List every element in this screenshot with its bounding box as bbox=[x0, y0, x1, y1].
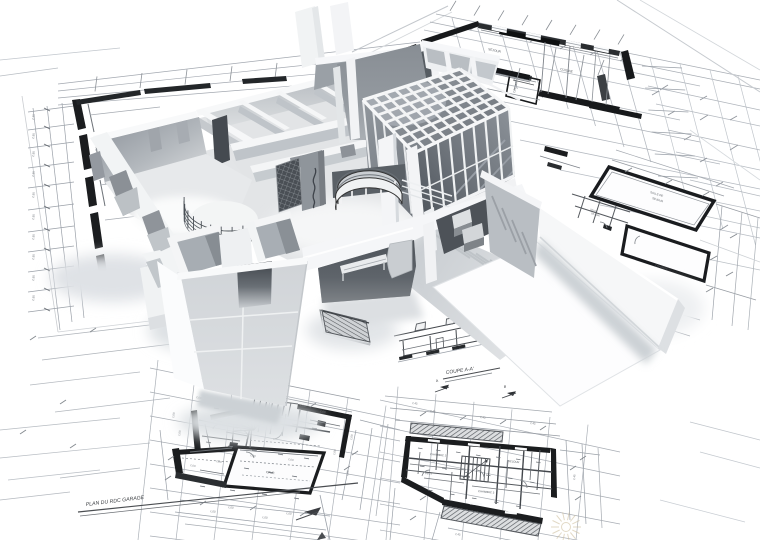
svg-text:2.45: 2.45 bbox=[412, 401, 418, 406]
svg-text:2.80: 2.80 bbox=[31, 253, 36, 260]
svg-text:2.80: 2.80 bbox=[31, 294, 36, 301]
svg-text:2.80: 2.80 bbox=[31, 132, 36, 139]
svg-text:2.80: 2.80 bbox=[31, 150, 36, 157]
svg-text:2.80: 2.80 bbox=[31, 170, 36, 177]
svg-text:2.45: 2.45 bbox=[455, 532, 461, 537]
svg-text:1.00: 1.00 bbox=[286, 511, 292, 516]
svg-text:2.80: 2.80 bbox=[31, 191, 36, 198]
svg-text:2.80: 2.80 bbox=[31, 233, 36, 240]
svg-text:1.00: 1.00 bbox=[262, 515, 268, 520]
svg-text:2.45: 2.45 bbox=[480, 415, 486, 420]
svg-text:2.45: 2.45 bbox=[530, 421, 536, 426]
svg-text:1.00: 1.00 bbox=[228, 505, 234, 510]
svg-text:2.80: 2.80 bbox=[31, 274, 36, 281]
svg-text:2.45: 2.45 bbox=[572, 474, 577, 480]
svg-text:2.80: 2.80 bbox=[31, 113, 36, 120]
svg-text:1.00: 1.00 bbox=[210, 509, 216, 514]
svg-text:2.80: 2.80 bbox=[31, 213, 36, 220]
svg-text:2.45: 2.45 bbox=[430, 409, 436, 414]
